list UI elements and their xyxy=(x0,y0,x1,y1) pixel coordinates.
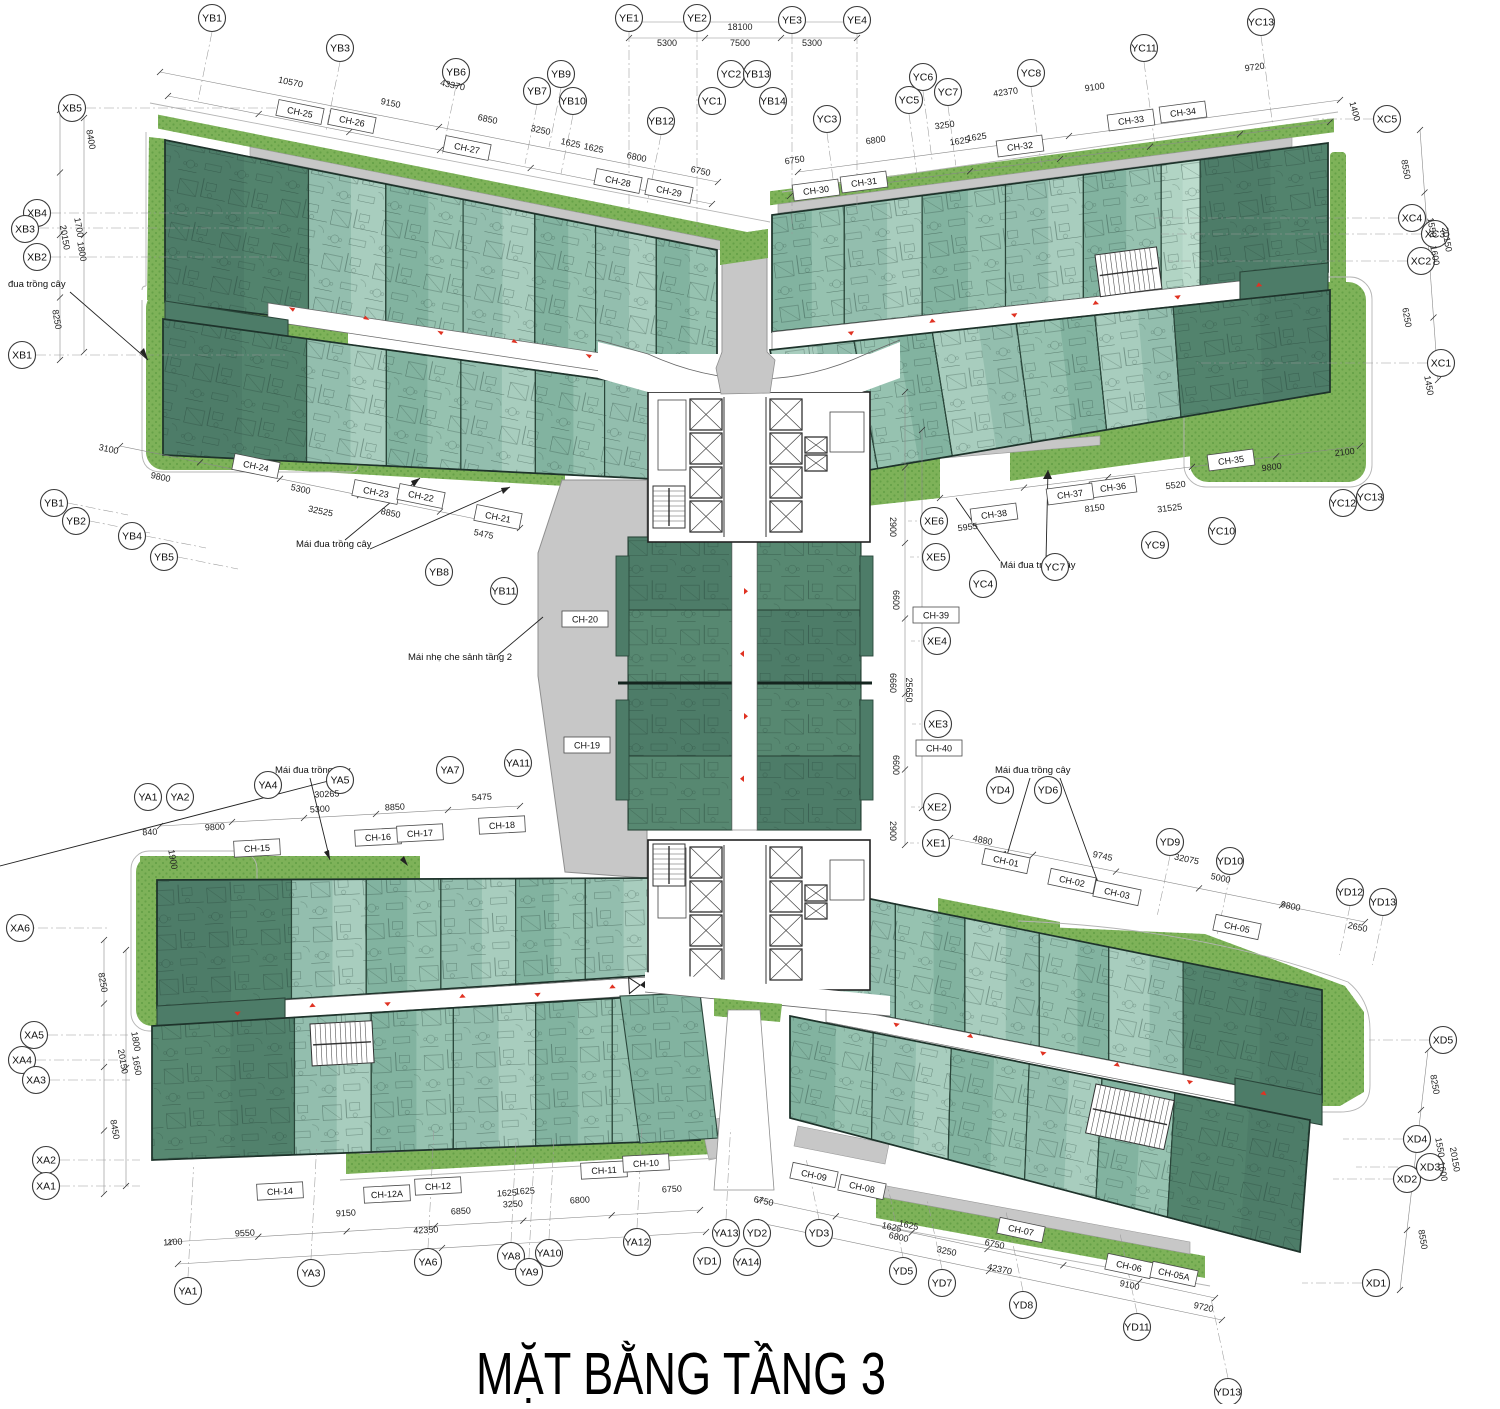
svg-text:YB11: YB11 xyxy=(492,586,517,598)
svg-text:CH-11: CH-11 xyxy=(591,1165,617,1176)
svg-text:YA7: YA7 xyxy=(440,765,459,777)
svg-text:YC7: YC7 xyxy=(938,87,959,99)
svg-text:YB7: YB7 xyxy=(527,86,547,98)
svg-text:9800: 9800 xyxy=(205,821,226,832)
svg-text:YD3: YD3 xyxy=(809,1228,830,1240)
svg-text:XD5: XD5 xyxy=(1433,1035,1454,1047)
svg-text:6600: 6600 xyxy=(891,590,901,610)
svg-text:3250: 3250 xyxy=(503,1198,524,1209)
svg-text:YD10: YD10 xyxy=(1217,856,1243,868)
svg-text:YA4: YA4 xyxy=(258,780,277,792)
svg-text:YD11: YD11 xyxy=(1124,1322,1150,1334)
svg-text:XB2: XB2 xyxy=(27,252,47,264)
svg-text:YA5: YA5 xyxy=(330,775,349,787)
svg-text:CH-12A: CH-12A xyxy=(371,1189,403,1201)
svg-text:CH-14: CH-14 xyxy=(267,1186,294,1197)
svg-text:CH-17: CH-17 xyxy=(407,828,434,839)
svg-text:YA1: YA1 xyxy=(178,1286,197,1298)
svg-text:YA13: YA13 xyxy=(714,1228,739,1240)
svg-text:YA14: YA14 xyxy=(735,1257,760,1269)
svg-text:6850: 6850 xyxy=(451,1205,472,1216)
svg-text:XC4: XC4 xyxy=(1402,213,1423,225)
svg-text:CH-12: CH-12 xyxy=(425,1181,452,1192)
svg-text:YC3: YC3 xyxy=(817,114,838,126)
svg-text:840: 840 xyxy=(142,827,158,838)
svg-text:5300: 5300 xyxy=(657,38,677,48)
svg-text:CH-20: CH-20 xyxy=(572,614,598,624)
svg-text:XA2: XA2 xyxy=(36,1155,56,1167)
svg-text:YB6: YB6 xyxy=(446,67,466,79)
svg-text:YA3: YA3 xyxy=(301,1268,320,1280)
svg-text:5475: 5475 xyxy=(472,791,493,802)
svg-text:XD1: XD1 xyxy=(1366,1278,1387,1290)
svg-text:YB8: YB8 xyxy=(429,567,449,579)
svg-text:CH-10: CH-10 xyxy=(633,1158,660,1169)
svg-text:YB4: YB4 xyxy=(122,531,142,543)
svg-text:18100: 18100 xyxy=(727,22,752,32)
svg-text:YB3: YB3 xyxy=(330,43,350,55)
svg-text:YB14: YB14 xyxy=(760,96,786,108)
svg-text:CH-39: CH-39 xyxy=(923,610,949,620)
svg-text:YB12: YB12 xyxy=(648,116,674,128)
svg-text:XB1: XB1 xyxy=(12,350,32,362)
svg-text:XC5: XC5 xyxy=(1377,114,1398,126)
svg-text:6600: 6600 xyxy=(891,755,901,775)
svg-text:CH-19: CH-19 xyxy=(574,740,600,750)
svg-text:XD2: XD2 xyxy=(1397,1174,1418,1186)
svg-text:2900: 2900 xyxy=(888,821,898,841)
svg-text:YD12: YD12 xyxy=(1337,887,1363,899)
svg-text:9150: 9150 xyxy=(336,1207,357,1218)
svg-text:CH-16: CH-16 xyxy=(365,832,392,843)
svg-text:YD13: YD13 xyxy=(1370,897,1396,909)
svg-text:YC9: YC9 xyxy=(1145,540,1166,552)
svg-text:YC12: YC12 xyxy=(1330,498,1356,510)
svg-text:YD13: YD13 xyxy=(1215,1387,1241,1399)
svg-text:YC11: YC11 xyxy=(1131,43,1157,55)
svg-text:8850: 8850 xyxy=(385,801,406,812)
svg-text:YC4: YC4 xyxy=(973,579,994,591)
svg-text:CH-18: CH-18 xyxy=(489,820,516,831)
svg-text:XE2: XE2 xyxy=(927,802,947,814)
svg-text:25650: 25650 xyxy=(904,677,914,702)
svg-text:9550: 9550 xyxy=(235,1227,256,1238)
svg-text:YB1: YB1 xyxy=(202,13,222,25)
svg-text:YD1: YD1 xyxy=(697,1256,718,1268)
svg-text:YA8: YA8 xyxy=(501,1251,520,1263)
svg-text:6800: 6800 xyxy=(570,1194,591,1205)
svg-text:YC13: YC13 xyxy=(1357,492,1383,504)
svg-text:42350: 42350 xyxy=(413,1224,439,1235)
svg-text:MẶT BẰNG TẦNG 3: MẶT BẰNG TẦNG 3 xyxy=(476,1341,886,1404)
svg-text:YD4: YD4 xyxy=(990,785,1011,797)
svg-text:YC5: YC5 xyxy=(899,95,920,107)
svg-text:YE1: YE1 xyxy=(619,13,639,25)
svg-text:YC13: YC13 xyxy=(1248,17,1274,29)
svg-text:YB2: YB2 xyxy=(66,516,86,528)
svg-text:YC6: YC6 xyxy=(913,72,934,84)
svg-text:XE5: XE5 xyxy=(926,552,946,564)
svg-text:YB5: YB5 xyxy=(154,552,174,564)
svg-text:Mái nhẹ che sảnh tầng 2: Mái nhẹ che sảnh tầng 2 xyxy=(408,652,512,663)
svg-text:XA1: XA1 xyxy=(36,1181,56,1193)
svg-text:YA1: YA1 xyxy=(138,792,157,804)
svg-text:30265: 30265 xyxy=(314,788,340,799)
svg-text:YD5: YD5 xyxy=(893,1266,914,1278)
svg-text:6660: 6660 xyxy=(888,673,898,693)
svg-text:YC1: YC1 xyxy=(702,96,723,108)
svg-text:YC2: YC2 xyxy=(721,69,742,81)
svg-text:7500: 7500 xyxy=(730,38,750,48)
svg-text:YB13: YB13 xyxy=(744,69,770,81)
svg-text:Mái đua trồng cây: Mái đua trồng cây xyxy=(995,765,1071,776)
svg-text:XA3: XA3 xyxy=(26,1075,46,1087)
svg-text:đua trồng cây: đua trồng cây xyxy=(8,279,66,290)
svg-text:YA10: YA10 xyxy=(537,1248,562,1260)
svg-text:YE3: YE3 xyxy=(782,15,802,27)
svg-text:YA11: YA11 xyxy=(506,758,530,770)
svg-text:YD6: YD6 xyxy=(1038,785,1059,797)
svg-text:1100: 1100 xyxy=(163,1237,183,1248)
svg-text:YD8: YD8 xyxy=(1013,1300,1034,1312)
svg-text:XB3: XB3 xyxy=(15,224,35,236)
svg-text:YD2: YD2 xyxy=(747,1228,768,1240)
svg-text:YD9: YD9 xyxy=(1160,837,1181,849)
svg-text:XC1: XC1 xyxy=(1431,358,1452,370)
svg-text:XE6: XE6 xyxy=(924,516,944,528)
svg-text:CH-40: CH-40 xyxy=(926,743,952,753)
svg-text:YA2: YA2 xyxy=(170,792,189,804)
svg-text:YC10: YC10 xyxy=(1209,526,1235,538)
svg-text:YA12: YA12 xyxy=(625,1237,650,1249)
svg-text:YA6: YA6 xyxy=(418,1257,437,1269)
svg-text:XE1: XE1 xyxy=(926,838,946,850)
svg-text:CH-15: CH-15 xyxy=(244,843,271,854)
svg-text:XE4: XE4 xyxy=(927,636,947,648)
svg-text:2900: 2900 xyxy=(888,517,898,537)
svg-text:Mái đua trồng cây: Mái đua trồng cây xyxy=(296,539,372,550)
svg-text:YD7: YD7 xyxy=(932,1278,953,1290)
svg-text:YC8: YC8 xyxy=(1021,68,1042,80)
svg-text:6750: 6750 xyxy=(662,1183,683,1194)
svg-text:5300: 5300 xyxy=(802,38,822,48)
svg-text:5300: 5300 xyxy=(310,803,331,814)
svg-text:YB10: YB10 xyxy=(560,96,586,108)
svg-text:XA6: XA6 xyxy=(10,923,30,935)
svg-text:YA9: YA9 xyxy=(519,1267,538,1279)
svg-text:XA5: XA5 xyxy=(24,1030,44,1042)
svg-text:XA4: XA4 xyxy=(12,1055,32,1067)
svg-text:1625: 1625 xyxy=(515,1185,536,1196)
svg-text:YB1: YB1 xyxy=(44,498,64,510)
svg-text:XB5: XB5 xyxy=(62,103,82,115)
svg-text:YB9: YB9 xyxy=(551,69,571,81)
svg-text:XE3: XE3 xyxy=(928,719,948,731)
svg-text:XC2: XC2 xyxy=(1411,256,1432,268)
svg-text:YE2: YE2 xyxy=(687,13,707,25)
svg-text:YC7: YC7 xyxy=(1045,562,1066,574)
svg-text:XD4: XD4 xyxy=(1407,1134,1428,1146)
svg-text:YE4: YE4 xyxy=(847,15,867,27)
